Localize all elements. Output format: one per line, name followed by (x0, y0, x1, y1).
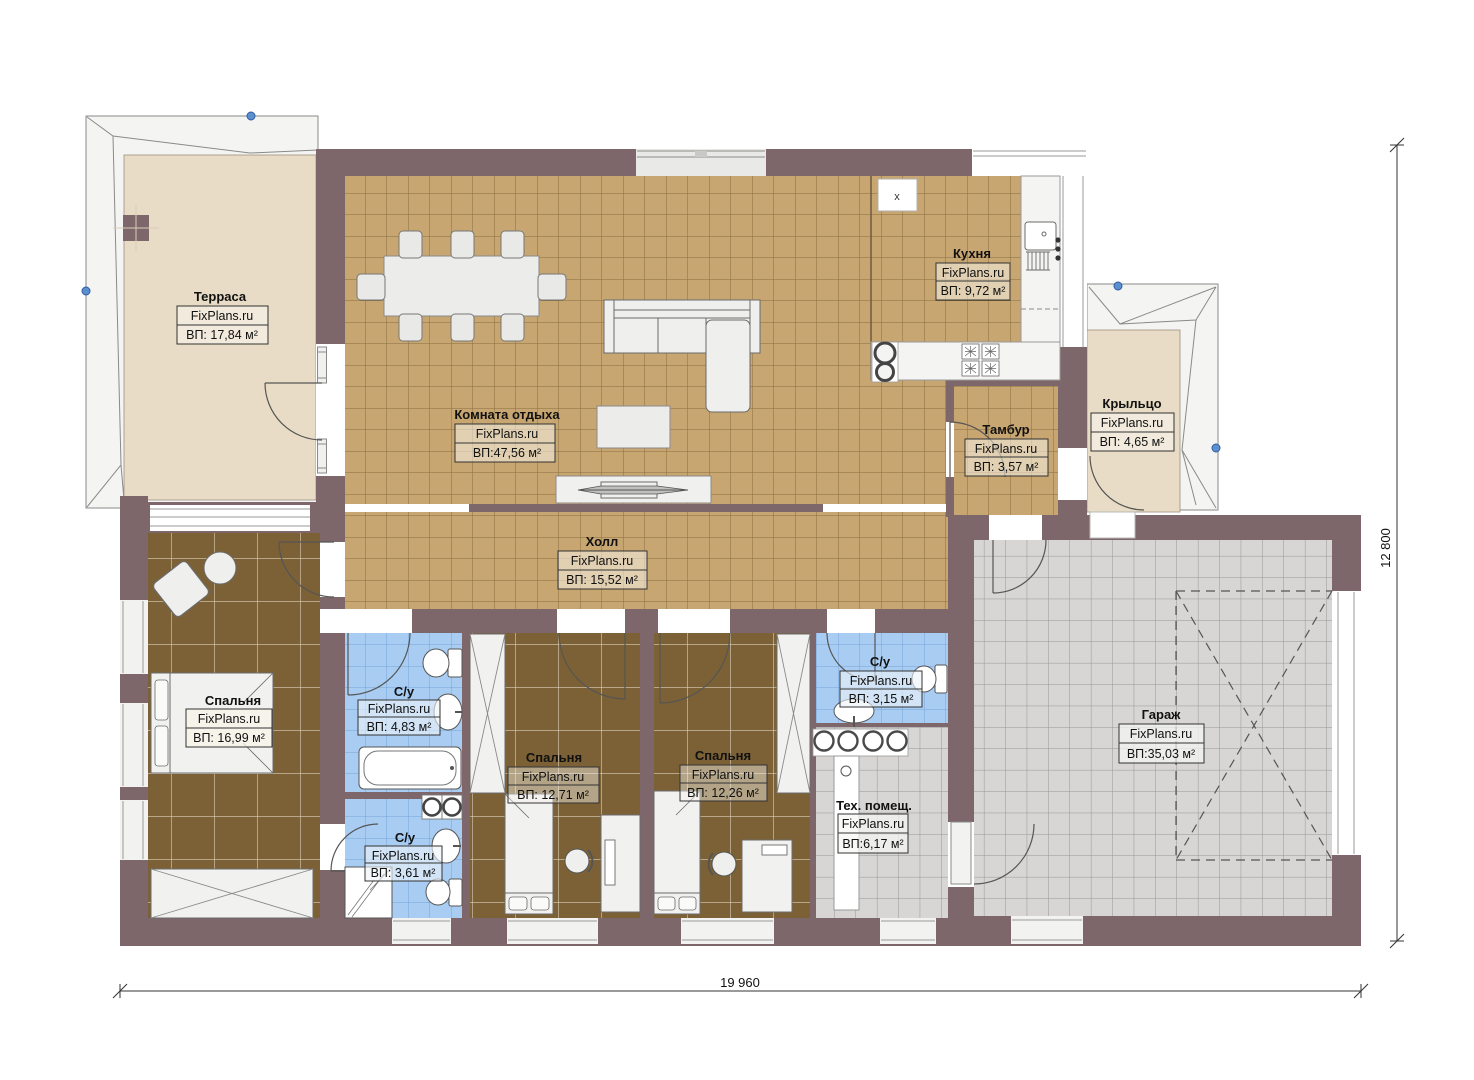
svg-text:FixPlans.ru: FixPlans.ru (476, 427, 539, 441)
svg-text:Комната отдыха: Комната отдыха (454, 407, 560, 422)
svg-text:ВП: 15,52 м²: ВП: 15,52 м² (566, 573, 638, 587)
svg-text:FixPlans.ru: FixPlans.ru (1101, 416, 1164, 430)
svg-text:Спальня: Спальня (695, 748, 751, 763)
svg-text:19 960: 19 960 (720, 975, 760, 990)
svg-text:Крыльцо: Крыльцо (1102, 396, 1161, 411)
svg-text:ВП: 3,15 м²: ВП: 3,15 м² (849, 692, 914, 706)
svg-text:FixPlans.ru: FixPlans.ru (850, 674, 913, 688)
svg-text:FixPlans.ru: FixPlans.ru (372, 849, 435, 863)
svg-text:ВП: 12,71 м²: ВП: 12,71 м² (517, 788, 589, 802)
svg-text:Кухня: Кухня (953, 246, 991, 261)
svg-text:FixPlans.ru: FixPlans.ru (191, 309, 254, 323)
svg-text:Тех. помещ.: Тех. помещ. (836, 798, 912, 813)
svg-text:ВП:6,17 м²: ВП:6,17 м² (842, 837, 903, 851)
svg-text:ВП: 9,72 м²: ВП: 9,72 м² (941, 284, 1006, 298)
svg-text:FixPlans.ru: FixPlans.ru (692, 768, 755, 782)
svg-text:ВП: 17,84 м²: ВП: 17,84 м² (186, 328, 258, 342)
svg-text:FixPlans.ru: FixPlans.ru (942, 266, 1005, 280)
svg-text:Терраса: Терраса (194, 289, 247, 304)
svg-text:Холл: Холл (586, 534, 619, 549)
svg-text:12 800: 12 800 (1378, 528, 1393, 568)
svg-text:С/у: С/у (870, 654, 891, 669)
svg-text:FixPlans.ru: FixPlans.ru (1130, 727, 1193, 741)
svg-text:Тамбур: Тамбур (982, 422, 1029, 437)
svg-text:ВП: 4,83 м²: ВП: 4,83 м² (367, 720, 432, 734)
svg-text:Гараж: Гараж (1142, 707, 1182, 722)
svg-text:ВП: 4,65 м²: ВП: 4,65 м² (1100, 435, 1165, 449)
svg-text:С/у: С/у (395, 830, 416, 845)
svg-text:ВП: 12,26 м²: ВП: 12,26 м² (687, 786, 759, 800)
svg-text:С/у: С/у (394, 684, 415, 699)
svg-text:ВП: 16,99 м²: ВП: 16,99 м² (193, 731, 265, 745)
svg-text:Спальня: Спальня (205, 693, 261, 708)
svg-text:x: x (894, 191, 900, 203)
svg-text:ВП:47,56 м²: ВП:47,56 м² (473, 446, 541, 460)
svg-text:FixPlans.ru: FixPlans.ru (842, 817, 905, 831)
svg-text:ВП:35,03 м²: ВП:35,03 м² (1127, 747, 1195, 761)
svg-text:Спальня: Спальня (526, 750, 582, 765)
svg-text:FixPlans.ru: FixPlans.ru (571, 554, 634, 568)
svg-text:FixPlans.ru: FixPlans.ru (368, 702, 431, 716)
svg-text:FixPlans.ru: FixPlans.ru (198, 712, 261, 726)
svg-text:ВП: 3,61 м²: ВП: 3,61 м² (371, 866, 436, 880)
svg-text:FixPlans.ru: FixPlans.ru (975, 442, 1038, 456)
svg-text:ВП: 3,57 м²: ВП: 3,57 м² (974, 460, 1039, 474)
svg-text:FixPlans.ru: FixPlans.ru (522, 770, 585, 784)
